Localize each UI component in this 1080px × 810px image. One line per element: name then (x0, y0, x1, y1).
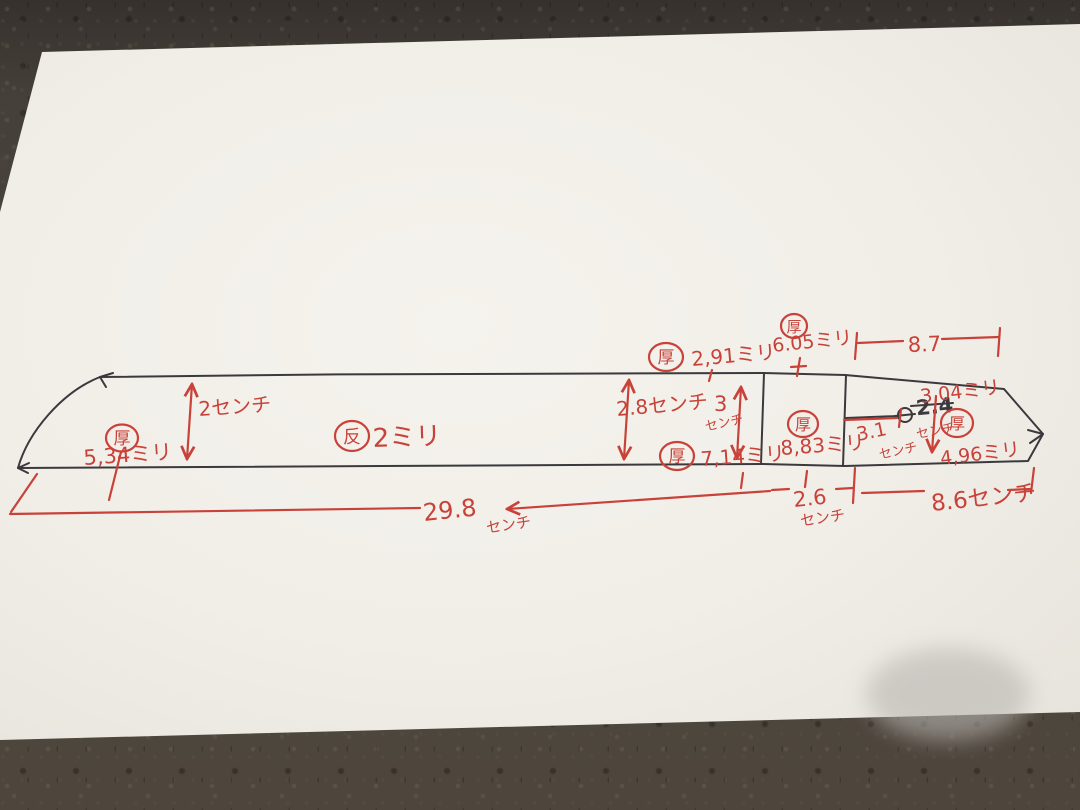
carpet-background: 2.4 センチ 厚 5,34ミリ 2センチ 反 2ミリ 2.8センチ 厚 2,9… (0, 0, 1080, 810)
dim-line-right (1008, 489, 1031, 490)
sori-kanji: 反 (343, 427, 361, 448)
atsu-kanji: 厚 (795, 415, 811, 434)
point-section-value: 8.7 (907, 332, 941, 357)
photo-of-blade-diagram: 2.4 センチ 厚 5,34ミリ 2センチ 反 2ミリ 2.8センチ 厚 2,9… (0, 0, 1080, 810)
right-height-value: 3 (714, 392, 727, 416)
paper-smudge (866, 648, 1030, 740)
left-height-value: 2センチ (198, 392, 272, 421)
total-length-value: 29.8 (422, 494, 478, 527)
dim-line-left (772, 489, 789, 490)
dim-line-right (836, 488, 853, 489)
atsu-kanji: 厚 (949, 414, 965, 433)
atsu-kanji: 厚 (658, 348, 675, 368)
atsu-kanji: 厚 (669, 447, 686, 467)
sori-value: 2ミリ (372, 422, 442, 454)
